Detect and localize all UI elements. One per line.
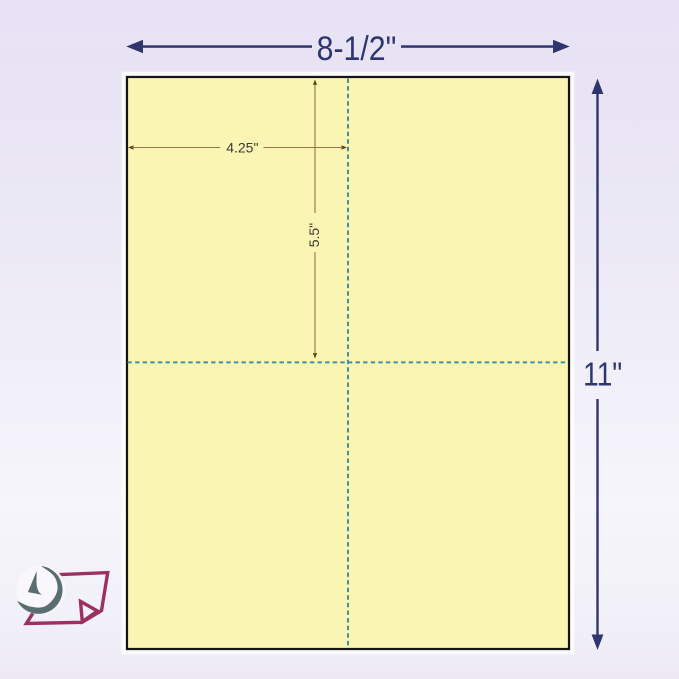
svg-text:8-1/2": 8-1/2" <box>317 29 397 67</box>
svg-text:5.5": 5.5" <box>306 223 322 247</box>
svg-text:11": 11" <box>583 356 622 393</box>
svg-text:4.25": 4.25" <box>226 140 258 156</box>
